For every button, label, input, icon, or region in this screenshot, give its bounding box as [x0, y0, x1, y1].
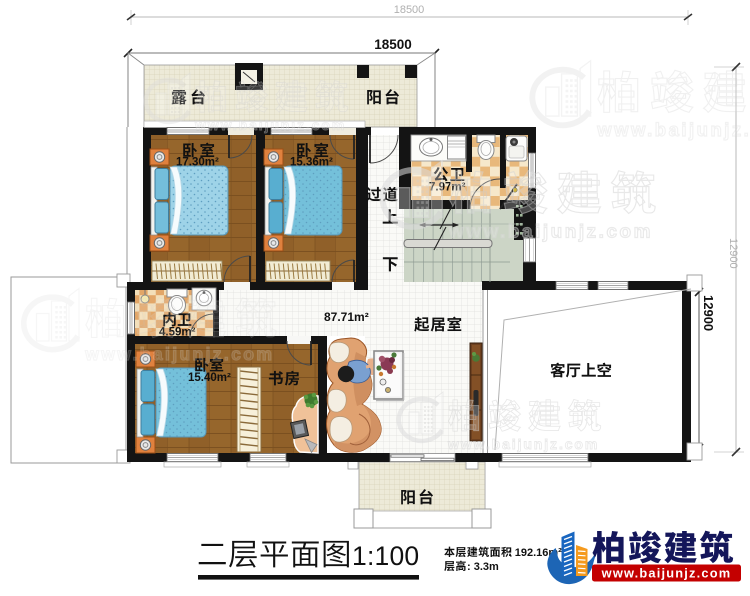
- svg-text:12900: 12900: [727, 238, 739, 269]
- svg-text:15.40m²: 15.40m²: [188, 372, 231, 384]
- svg-text:18500: 18500: [394, 4, 425, 16]
- svg-text:www.baijunjz.com: www.baijunjz.com: [601, 566, 732, 581]
- svg-text:1:100: 1:100: [352, 541, 419, 571]
- svg-text:15.36m²: 15.36m²: [290, 157, 333, 169]
- svg-text:17.30m²: 17.30m²: [176, 157, 219, 169]
- svg-text:12900: 12900: [701, 295, 716, 331]
- svg-text:: 3.3m: : 3.3m: [467, 561, 499, 573]
- svg-text:18500: 18500: [374, 37, 412, 52]
- svg-text:87.71m²: 87.71m²: [324, 310, 369, 324]
